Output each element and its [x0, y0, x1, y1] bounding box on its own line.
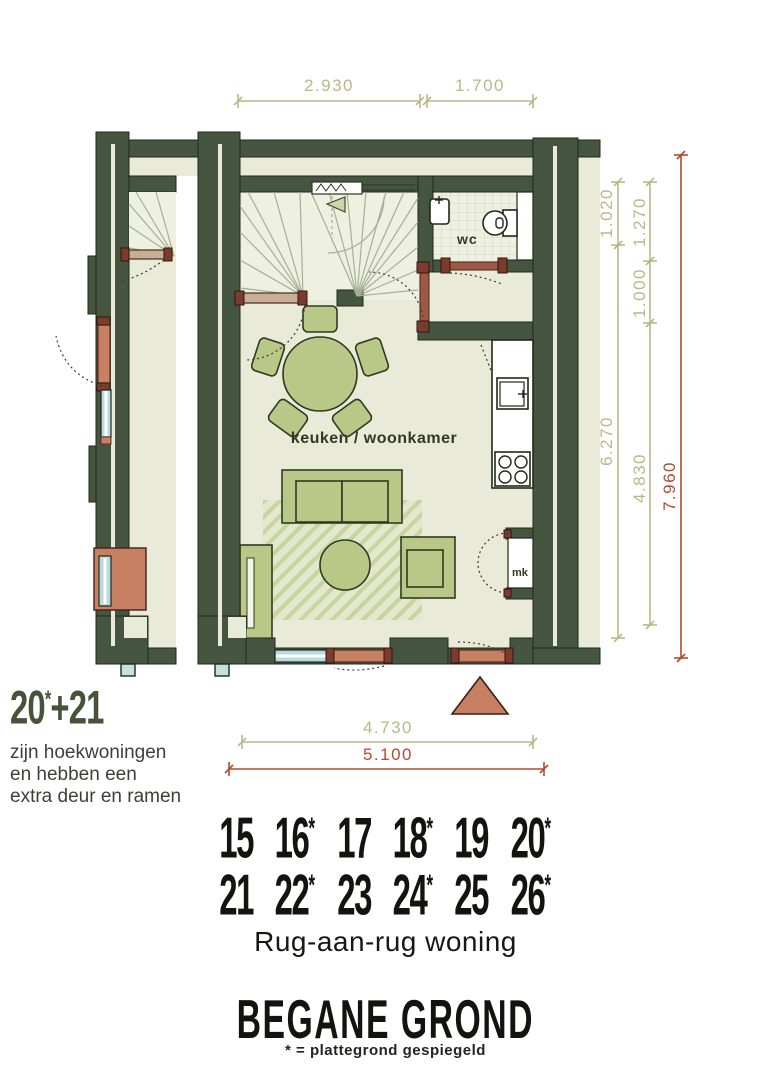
- foot-icon: [121, 664, 135, 676]
- foot-icon: [215, 664, 229, 676]
- dim-label: 7.960: [660, 461, 679, 511]
- corner-notch-main: [228, 617, 246, 638]
- note-line: zijn hoekwoningen: [10, 742, 230, 764]
- neighbour-side-window: [101, 390, 111, 444]
- dim-label: 6.270: [597, 416, 616, 466]
- hand-basin-icon: [430, 196, 449, 224]
- stairs-floor: [240, 192, 418, 300]
- unit-number: 21: [217, 861, 255, 928]
- hall-wall: [418, 322, 533, 340]
- back-neighbour-wall: [96, 140, 600, 157]
- sofa: [282, 470, 402, 523]
- mk-label: mk: [512, 567, 529, 579]
- dim-label: 1.700: [455, 76, 505, 95]
- unit-numbers: 1516*1718*1920* 2122*2324*2526*: [0, 810, 771, 922]
- dim-top: [234, 94, 537, 108]
- unit-number: 26*: [508, 861, 553, 928]
- seam-left: [218, 144, 222, 646]
- toilet-icon: [483, 210, 517, 236]
- dim-bottom-total: [225, 762, 548, 776]
- wall-tab-a: [88, 256, 96, 314]
- front-window: [275, 650, 327, 662]
- dim-label: 1.020: [597, 188, 616, 238]
- dim-label: 4.830: [630, 453, 649, 503]
- dining-chair: [303, 306, 337, 332]
- note-number-left: 20: [10, 682, 45, 734]
- dim-label: 5.100: [363, 745, 413, 764]
- floorplan-page: wc mk: [0, 0, 771, 1080]
- unit-number: 22*: [272, 861, 317, 928]
- stove-icon: [495, 452, 530, 486]
- unit-number: 24*: [390, 861, 435, 928]
- dim-label: 2.930: [304, 76, 354, 95]
- unit-number-row: 2122*2324*2526*: [209, 867, 563, 922]
- front-wall-pier-b: [390, 638, 448, 664]
- dim-label: 4.730: [363, 718, 413, 737]
- unit-number: 23: [335, 861, 373, 928]
- dining-table: [283, 337, 357, 411]
- corner-house-note: zijn hoekwoningen en hebben een extra de…: [10, 742, 230, 808]
- coffee-table: [320, 540, 370, 590]
- armchair: [401, 537, 455, 598]
- floor-title: BEGANE GROND: [0, 988, 771, 1040]
- unit-number: 25: [453, 861, 491, 928]
- mirrored-legend: * = plattegrond gespiegeld: [0, 1042, 771, 1059]
- corner-notch-neighbour: [124, 617, 147, 638]
- note-number-right: +21: [50, 682, 103, 734]
- unit-number-row: 1516*1718*1920*: [209, 810, 563, 865]
- wall-feet: [121, 664, 229, 676]
- entrance-triangle-icon: [452, 677, 508, 714]
- dim-right-inner: [611, 178, 625, 642]
- shaft: [517, 192, 533, 260]
- dim-right-total: [674, 151, 688, 662]
- back-gap-floor: [96, 157, 600, 176]
- note-line: en hebben een: [10, 764, 230, 786]
- wc-label: wc: [456, 231, 478, 247]
- neighbour-side-door: [56, 317, 110, 391]
- kitchen-sink-icon: [497, 378, 528, 409]
- seam-right: [553, 146, 557, 646]
- dim-label: 1.000: [630, 268, 649, 318]
- terrace-door: [326, 648, 392, 670]
- house-type-label: Rug-aan-rug woning: [0, 926, 771, 958]
- corner-house-note-title: 20*+21: [10, 682, 124, 727]
- wall-tab-b: [89, 446, 96, 502]
- note-line: extra deur en ramen: [10, 786, 230, 808]
- neighbour-framed-window: [94, 548, 146, 610]
- floor-plan-drawing: wc mk: [0, 0, 771, 790]
- living-room-label: keuken / woonkamer: [291, 430, 457, 447]
- dim-label: 1.270: [630, 197, 649, 247]
